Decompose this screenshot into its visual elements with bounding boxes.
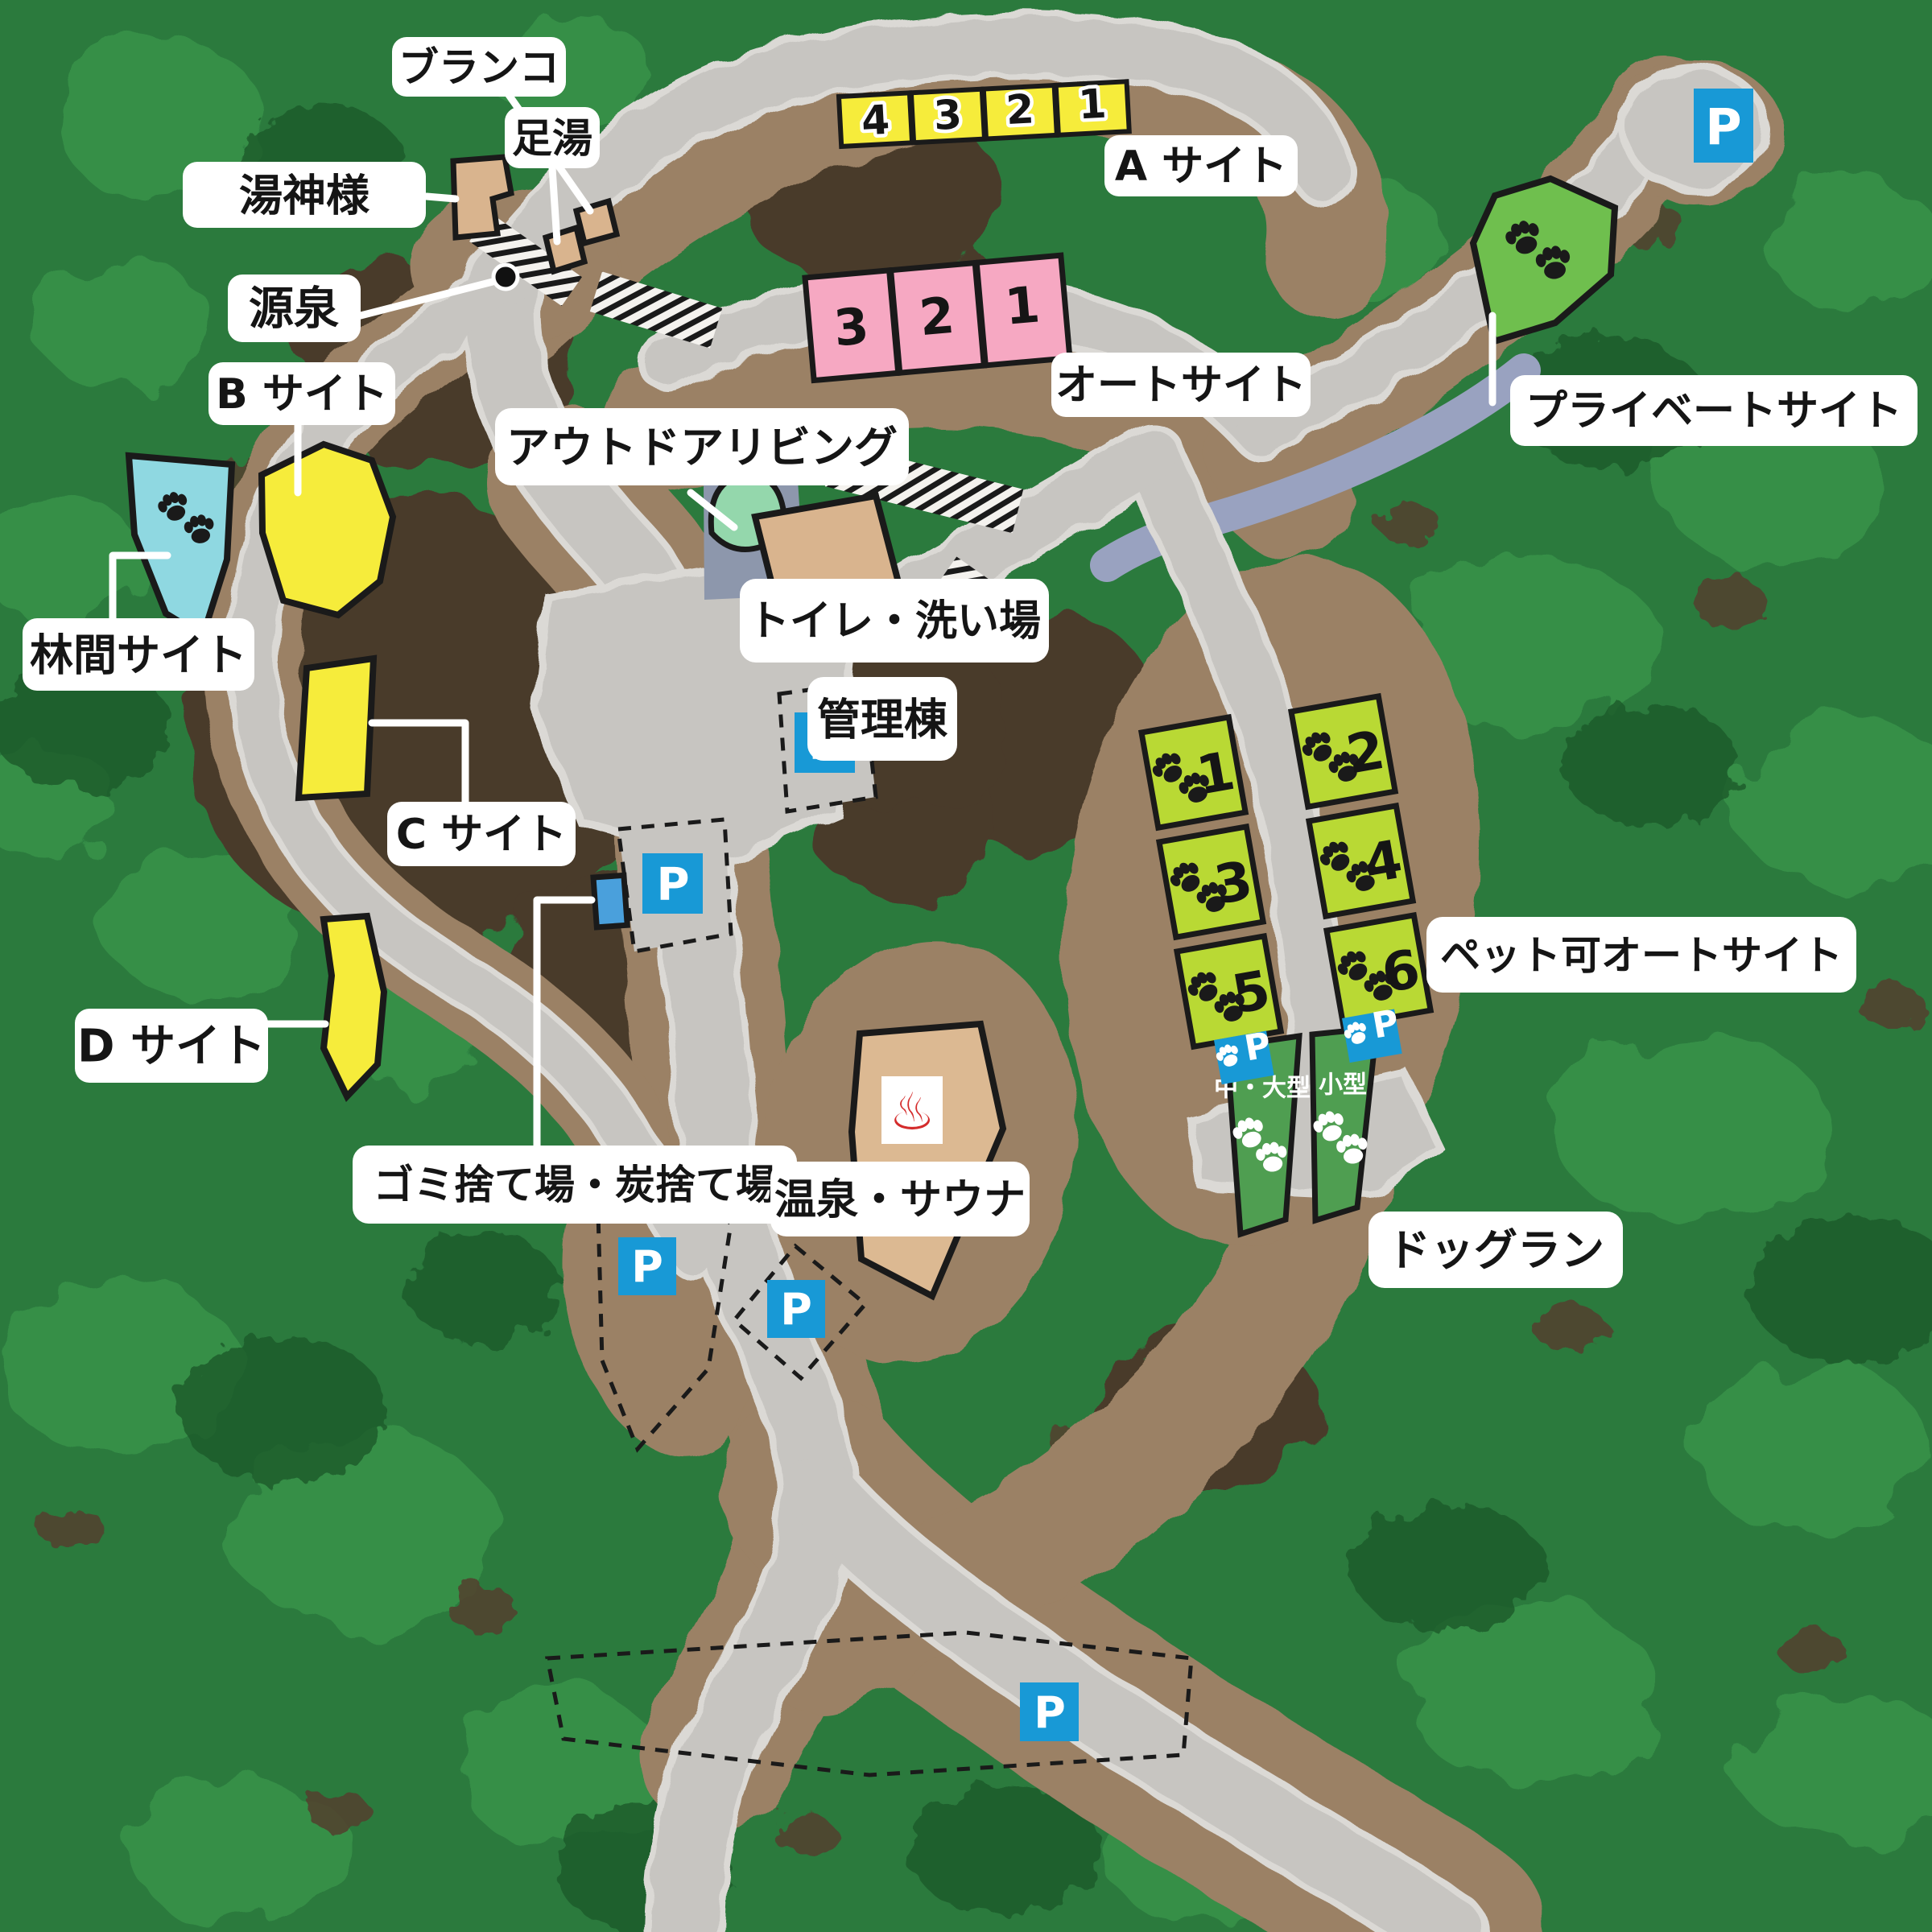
parking-sign-diamond: P (767, 1280, 825, 1338)
label-text: トイレ・洗い場 (748, 597, 1041, 646)
auto-site-row: 3 2 1 (805, 255, 1070, 380)
d-site-area (324, 916, 384, 1096)
label-text: プライベートサイト (1525, 387, 1902, 436)
label-private-site: プライベートサイト (1510, 375, 1918, 446)
label-kanritou: 管理棟 (807, 677, 957, 761)
label-text: ブランコ (398, 44, 559, 91)
label-text: 林間サイト (30, 630, 247, 681)
onsen-icon: ♨ (889, 1083, 935, 1142)
label-rinkan-site: 林間サイト (23, 618, 254, 691)
gensen-spring-dot (493, 265, 518, 289)
pet-site-cell-4: 4 (1309, 806, 1413, 916)
label-ashiyu: 足湯 (505, 107, 600, 168)
auto-site-cell-number: 2 (917, 286, 956, 347)
label-text: ペット可オートサイト (1440, 932, 1843, 979)
parking-letter: P (656, 859, 689, 911)
ashiyu-building (546, 228, 584, 271)
label-text: B サイト (216, 370, 388, 419)
parking-letter: P (1705, 98, 1741, 157)
a-site-cell-number: 4 (861, 97, 891, 145)
parking-letter: P (780, 1285, 812, 1335)
parking-letter: P (631, 1242, 663, 1293)
parking-sign-bottom: P (1020, 1682, 1079, 1741)
parking-sign-private: P (1694, 89, 1753, 163)
label-onsen-sauna: 温泉・サウナ (770, 1162, 1030, 1236)
label-outdoor-living: アウトドアリビング (495, 408, 909, 485)
label-d-site: D サイト (75, 1009, 268, 1083)
label-text: 管理棟 (817, 695, 948, 745)
label-text: ドッグラン (1387, 1225, 1604, 1276)
parking-sign-bottom-left: P (618, 1237, 676, 1295)
b-site-area (262, 444, 393, 615)
pet-site-cell-3: 3 (1159, 827, 1263, 937)
label-text: 温泉・サウナ (774, 1176, 1026, 1224)
label-text: 足湯 (512, 115, 592, 162)
pet-site-cell-1: 1 (1141, 717, 1245, 828)
label-b-site: B サイト (208, 362, 395, 425)
label-c-site: C サイト (387, 802, 576, 866)
label-text: ゴミ捨て場・炭捨て場 (374, 1162, 776, 1208)
label-buranko: ブランコ (392, 37, 566, 97)
dog-run-small-label: 小型 (1319, 1071, 1367, 1100)
pet-site-cell-2: 2 (1291, 696, 1395, 807)
label-dog-run: ドッグラン (1368, 1212, 1623, 1288)
c-site-area (299, 658, 374, 798)
parking-sign-central: P (642, 853, 703, 914)
auto-site-cell-number: 1 (1002, 275, 1042, 336)
label-text: D サイト (77, 1021, 266, 1073)
label-yugamisama: 湯神様 (183, 162, 426, 228)
auto-site-cell-number: 3 (832, 296, 871, 357)
label-text: 源泉 (249, 283, 339, 336)
label-pet-auto-site: ペット可オートサイト (1426, 917, 1856, 993)
label-text: A サイト (1115, 142, 1287, 191)
garbage-disposal-marker (593, 875, 627, 927)
label-auto-site: オートサイト (1051, 353, 1311, 417)
label-gensen: 源泉 (228, 275, 361, 342)
campground-map-page: 4 3 2 1 3 2 1 (0, 0, 1932, 1932)
parking-letter: P (1034, 1688, 1066, 1739)
a-site-cell-number: 2 (1005, 85, 1035, 134)
label-a-site: A サイト (1104, 135, 1298, 196)
buranko-building (576, 201, 617, 243)
campground-map: 4 3 2 1 3 2 1 (0, 0, 1932, 1932)
label-text: アウトドアリビング (506, 423, 898, 473)
label-text: オートサイト (1055, 361, 1307, 410)
label-toilet-washing: トイレ・洗い場 (740, 579, 1049, 663)
label-text: C サイト (396, 811, 567, 859)
a-site-cell-number: 3 (932, 91, 963, 139)
label-text: 湯神様 (239, 171, 370, 221)
label-gomi-sumi: ゴミ捨て場・炭捨て場 (353, 1146, 797, 1224)
a-site-cell-number: 1 (1077, 80, 1108, 129)
